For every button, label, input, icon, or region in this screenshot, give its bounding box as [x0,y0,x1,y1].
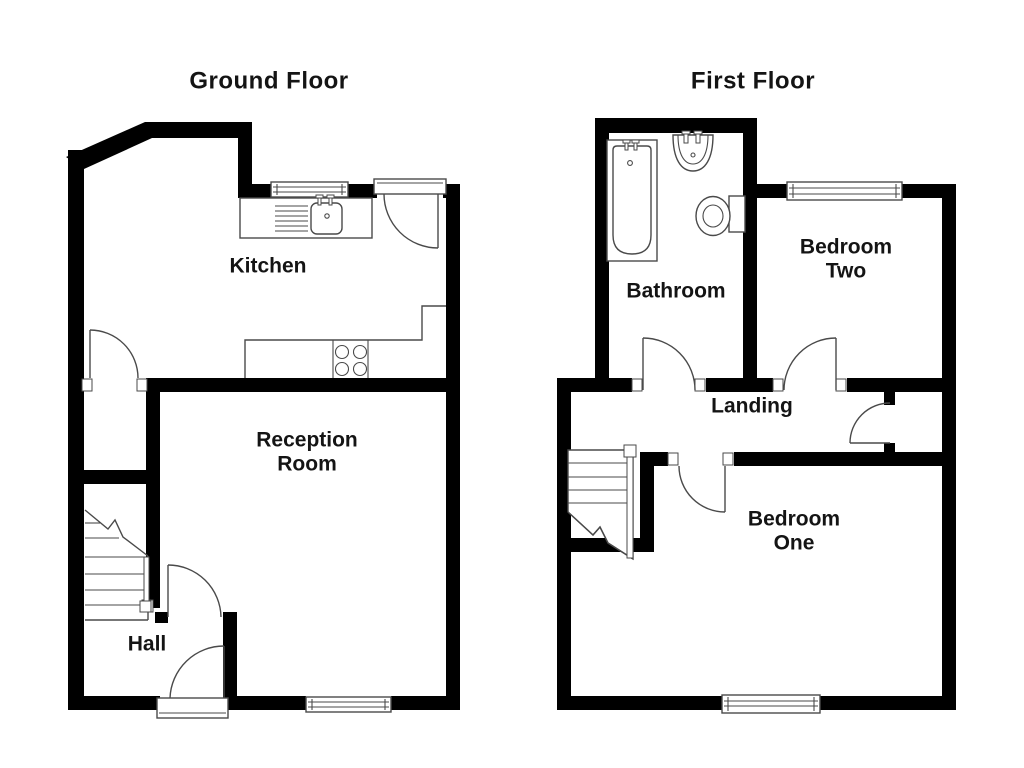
closet-door [82,330,147,391]
reception-window [306,697,391,712]
stair-rail [627,450,633,558]
bathroom-bedroom-two-divider [743,118,757,392]
bathroom-door [632,338,705,391]
bedroom-two-door [773,338,846,391]
kitchen-fixtures [240,195,446,378]
first-floor-doors [632,338,890,512]
hall-label: Hall [128,633,167,656]
first-floor-title: First Floor [691,68,815,95]
kitchen-label: Kitchen [229,255,306,278]
ground-floor-staircase [85,510,151,620]
toilet [696,196,745,236]
first-floor-plan: First Floor [557,68,956,714]
reception-room-label-line2: Room [277,453,337,476]
bathroom-fixtures [607,131,745,261]
landing-label: Landing [711,395,793,418]
ground-floor-title: Ground Floor [189,68,348,95]
bathroom-label: Bathroom [626,280,725,303]
landing-cupboard-door [850,403,890,443]
bedroom-two-label-line2: Two [826,260,866,283]
ground-floor-plan: Ground Floor [66,68,460,719]
bedroom-one-door [668,453,733,512]
basin [673,131,713,171]
sink-unit [240,195,372,238]
hob [336,346,367,376]
bedroom-one-wall [734,452,942,466]
toilet-bowl [696,197,730,236]
worktop [245,306,446,378]
floorplan-page: Ground Floor [0,0,1024,768]
newel-post [140,601,151,612]
closet-wall [84,470,146,484]
bedroom-one-label-line2: One [774,532,815,555]
kitchen-reception-divider-wall [146,378,446,392]
stair-break-line [85,510,148,556]
kitchen-back-door [374,179,446,248]
stair-rail [144,557,149,602]
bath [607,140,657,261]
bedroom-one-window [722,695,820,713]
stairwell-wall [640,452,654,552]
floorplan-drawing: Ground Floor [0,0,1024,768]
kitchen-sink-window [271,182,348,197]
bedroom-two-label-line1: Bedroom [800,236,892,259]
front-door [157,646,228,718]
toilet-cistern [729,196,745,232]
newel-post [624,445,636,457]
reception-room-label-line1: Reception [256,429,358,452]
bedroom-two-window [787,182,902,200]
bedroom-one-label-line1: Bedroom [748,508,840,531]
